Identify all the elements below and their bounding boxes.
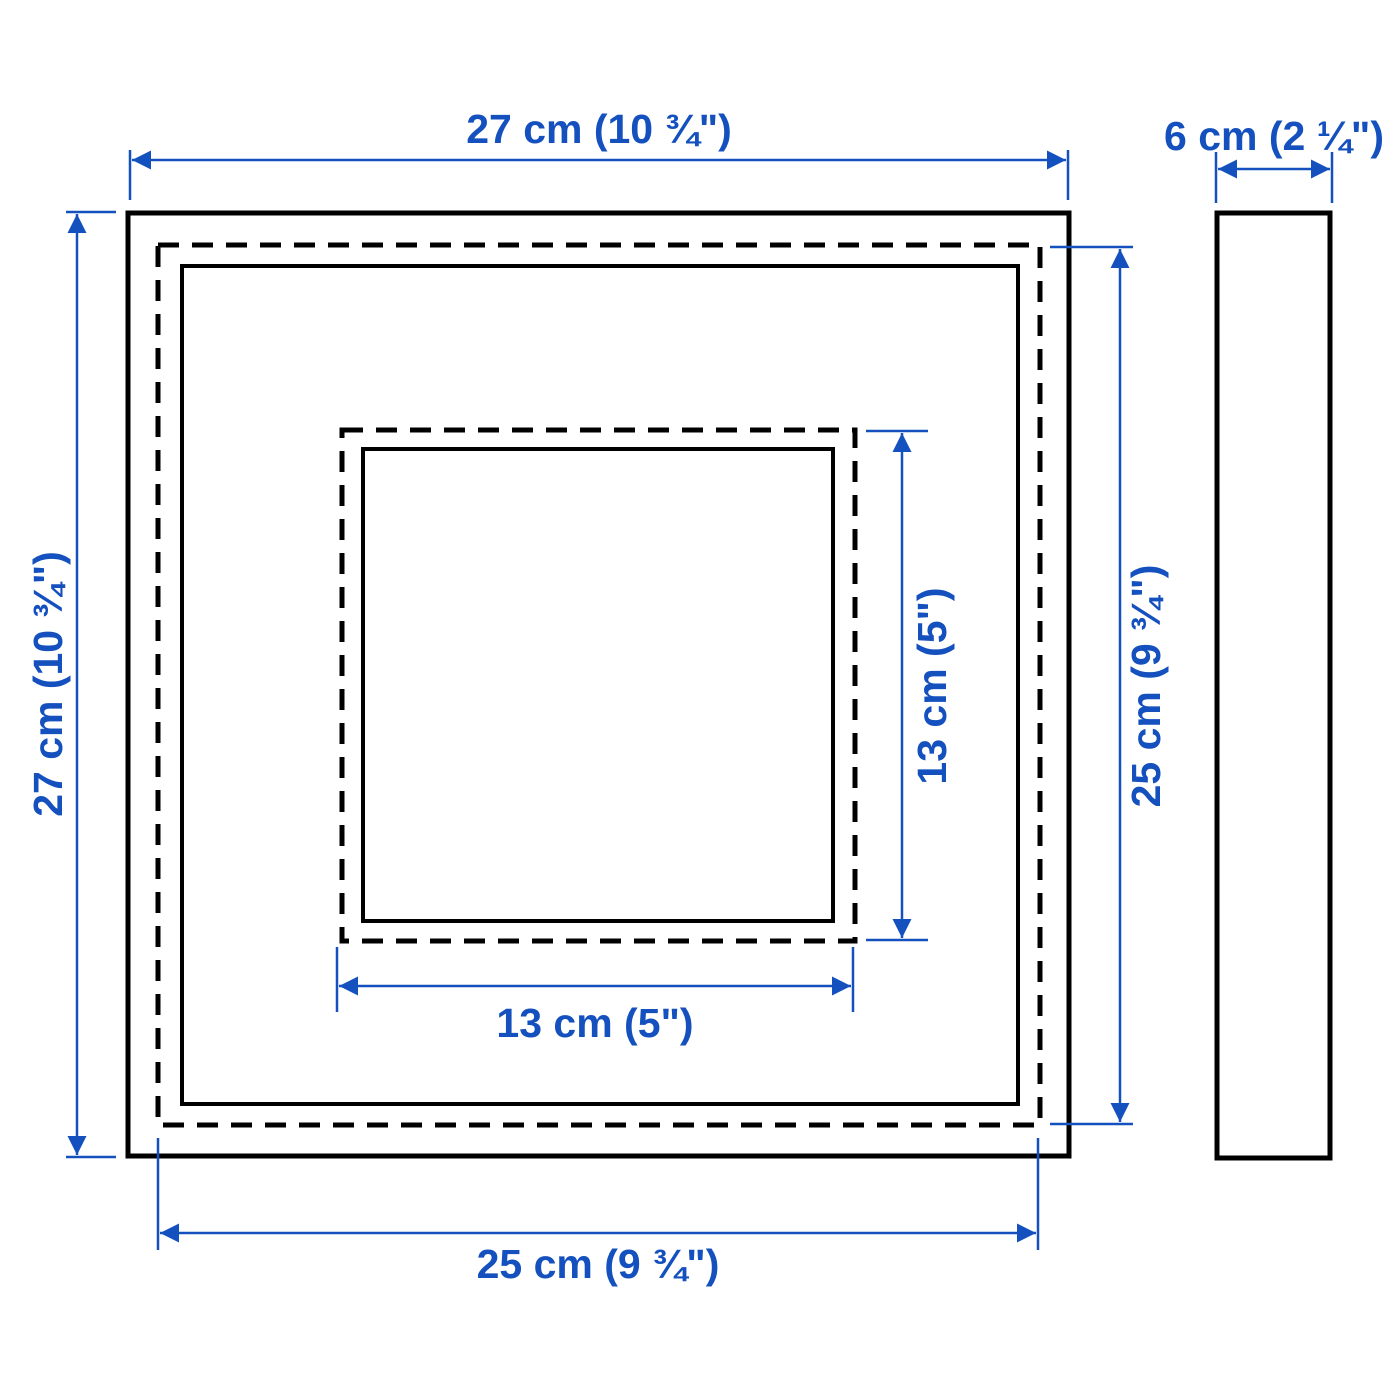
dimension-visible-front-width: 25 cm (9 ¾") bbox=[158, 1138, 1038, 1287]
dimension-outer-width: 27 cm (10 ¾") bbox=[130, 106, 1068, 200]
side-view bbox=[1217, 213, 1330, 1158]
dimension-label-depth: 6 cm (2 ¼") bbox=[1164, 113, 1384, 159]
dimension-diagram-page: 27 cm (10 ¾") 27 cm (10 ¾") 6 cm (2 ¼") … bbox=[0, 0, 1400, 1400]
frame-dimension-diagram: 27 cm (10 ¾") 27 cm (10 ¾") 6 cm (2 ¼") … bbox=[0, 0, 1400, 1400]
dimension-label-outer-width: 27 cm (10 ¾") bbox=[466, 106, 732, 152]
dimension-opening-width: 13 cm (5") bbox=[337, 947, 853, 1046]
frame-side-profile-outline bbox=[1217, 213, 1330, 1158]
dimension-label-visible-front-height: 25 cm (9 ¾") bbox=[1123, 565, 1169, 808]
dimension-outer-height: 27 cm (10 ¾") bbox=[25, 212, 116, 1157]
dimension-depth: 6 cm (2 ¼") bbox=[1164, 113, 1384, 203]
picture-opening-outline bbox=[363, 449, 833, 921]
frame-front-face-dashed-outline bbox=[158, 245, 1040, 1125]
dimension-label-visible-front-width: 25 cm (9 ¾") bbox=[477, 1241, 720, 1287]
dimension-opening-height: 13 cm (5") bbox=[866, 431, 955, 940]
picture-opening-dashed-outline bbox=[342, 430, 855, 941]
frame-front-face-inner-outline bbox=[182, 266, 1018, 1104]
dimension-label-opening-width: 13 cm (5") bbox=[496, 1000, 693, 1046]
dimension-label-outer-height: 27 cm (10 ¾") bbox=[25, 551, 71, 817]
dimension-label-opening-height: 13 cm (5") bbox=[909, 587, 955, 784]
